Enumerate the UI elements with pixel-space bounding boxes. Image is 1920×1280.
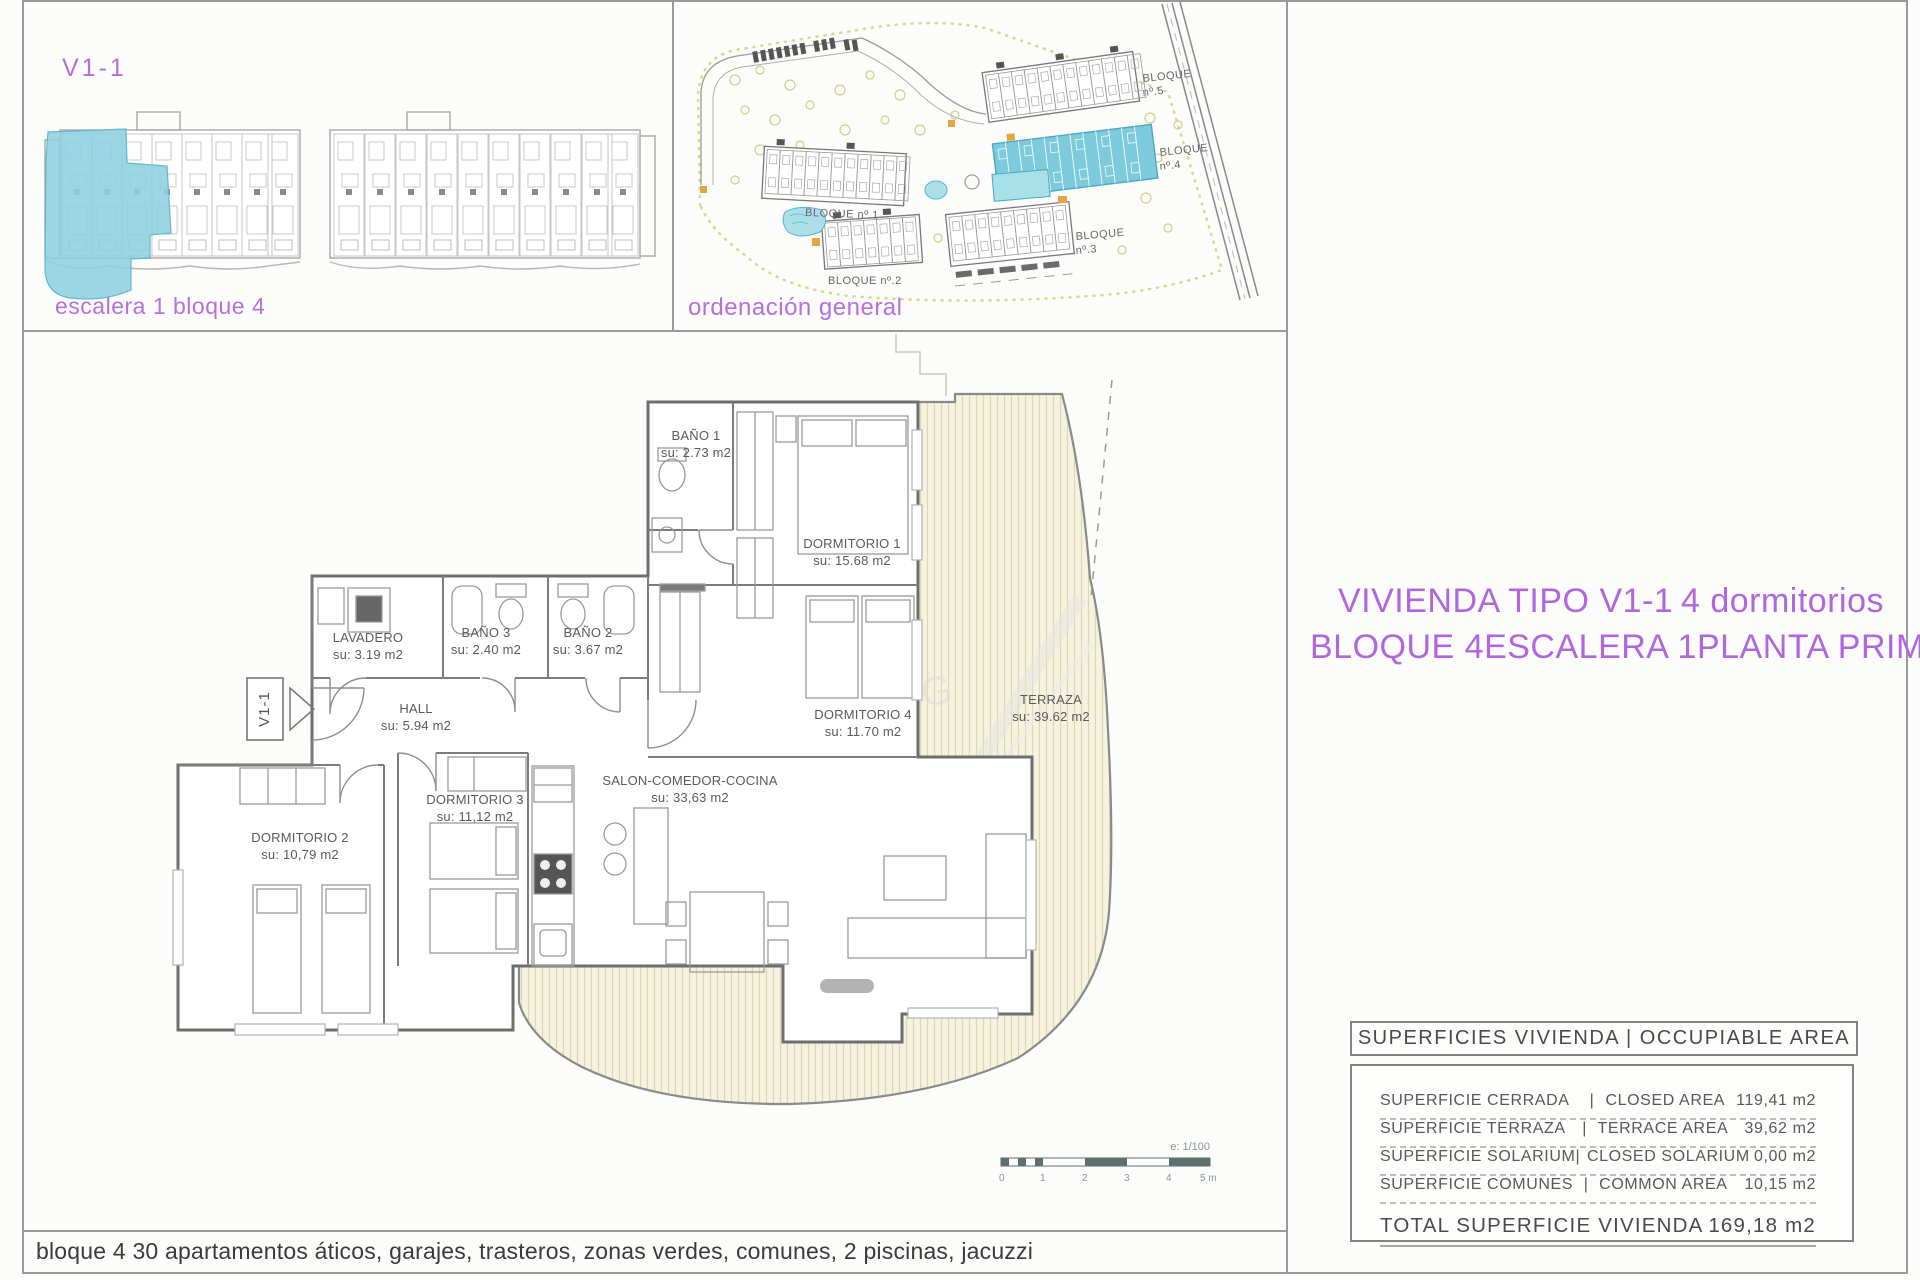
svg-text:2: 2 <box>1082 1173 1088 1184</box>
table-row: SUPERFICIE CERRADA| CLOSED AREA 119,41 m… <box>1380 1092 1816 1120</box>
svg-text:4: 4 <box>1166 1173 1172 1184</box>
frame-bottom <box>22 1272 1908 1274</box>
plan-sheet: V1-1 <box>0 0 1920 1280</box>
svg-text:5 m: 5 m <box>1200 1173 1217 1184</box>
table-row: SUPERFICIE SOLARIUM| CLOSED SOLARIUM 0,0… <box>1380 1148 1816 1176</box>
room-label: DORMITORIO 2su: 10,79 m2 <box>180 829 420 863</box>
title-line-2: BLOQUE 4 ESCALERA 1 PLANTA PRIMERA <box>1308 628 1888 667</box>
svg-text:e: 1/100: e: 1/100 <box>1170 1141 1210 1153</box>
svg-text:BLOQUE nº.1: BLOQUE nº.1 <box>805 207 879 222</box>
room-label: BAÑO 2su: 3.67 m2 <box>468 624 708 658</box>
site-plan: BLOQUE nº.5 BLOQUE nº.4 BLOQUE nº.1 BLOQ… <box>672 2 1286 330</box>
bottom-caption: bloque 4 30 apartamentos áticos, garajes… <box>36 1238 1033 1265</box>
areas-table-header: SUPERFICIES VIVIENDA | OCCUPIABLE AREA <box>1350 1021 1858 1056</box>
divider-bottom-caption <box>22 1230 1288 1232</box>
svg-text:V1-1: V1-1 <box>256 691 273 727</box>
svg-text:0: 0 <box>999 1173 1005 1184</box>
room-label: DORMITORIO 3su: 11,12 m2 <box>355 791 595 825</box>
title-dormitorios: 4 dormitorios <box>1681 582 1884 621</box>
title-planta: PLANTA PRIMERA <box>1697 628 1920 667</box>
svg-text:nº.4: nº.4 <box>1159 159 1181 173</box>
scale-bar: e: 1/100 0 1 2 3 4 5 m <box>999 1141 1217 1184</box>
sheet-title: VIVIENDA TIPO V1-1 4 dormitorios BLOQUE … <box>1308 582 1888 667</box>
room-label: DORMITORIO 1su: 15.68 m2 <box>732 535 972 569</box>
room-label: BAÑO 1su: 2.73 m2 <box>576 427 816 461</box>
key-caption: escalera 1 bloque 4 <box>55 293 265 320</box>
svg-text:nº.3: nº.3 <box>1075 243 1097 257</box>
table-total-row: TOTAL SUPERFICIE VIVIENDA 169,18 m2 <box>1380 1214 1816 1247</box>
title-bloque: BLOQUE 4 <box>1310 628 1484 667</box>
title-escalera: ESCALERA 1 <box>1484 628 1697 667</box>
svg-text:BLOQUE: BLOQUE <box>1075 227 1125 243</box>
title-vivienda: VIVIENDA TIPO V1-1 <box>1338 582 1673 621</box>
table-row: SUPERFICIE TERRAZA| TERRACE AREA 39,62 m… <box>1380 1120 1816 1148</box>
svg-text:BLOQUE nº.2: BLOQUE nº.2 <box>828 275 902 287</box>
svg-text:1: 1 <box>1040 1173 1046 1184</box>
svg-text:3: 3 <box>1124 1173 1130 1184</box>
room-label: SALON-COMEDOR-COCINAsu: 33,63 m2 <box>570 772 810 806</box>
site-caption: ordenación general <box>688 294 903 322</box>
room-label: HALLsu: 5.94 m2 <box>296 700 536 734</box>
divider-right-column <box>1286 0 1288 1274</box>
room-label: TERRAZAsu: 39.62 m2 <box>931 691 1171 725</box>
areas-table: SUPERFICIE CERRADA| CLOSED AREA 119,41 m… <box>1350 1064 1854 1242</box>
table-row: SUPERFICIE COMUNES| COMMON AREA 10,15 m2 <box>1380 1176 1816 1204</box>
building-key-thumbnail <box>22 2 672 330</box>
title-line-1: VIVIENDA TIPO V1-1 4 dormitorios <box>1308 582 1888 621</box>
svg-text:nº.5: nº.5 <box>1142 85 1164 99</box>
svg-text:BLOQUE: BLOQUE <box>1142 68 1192 85</box>
